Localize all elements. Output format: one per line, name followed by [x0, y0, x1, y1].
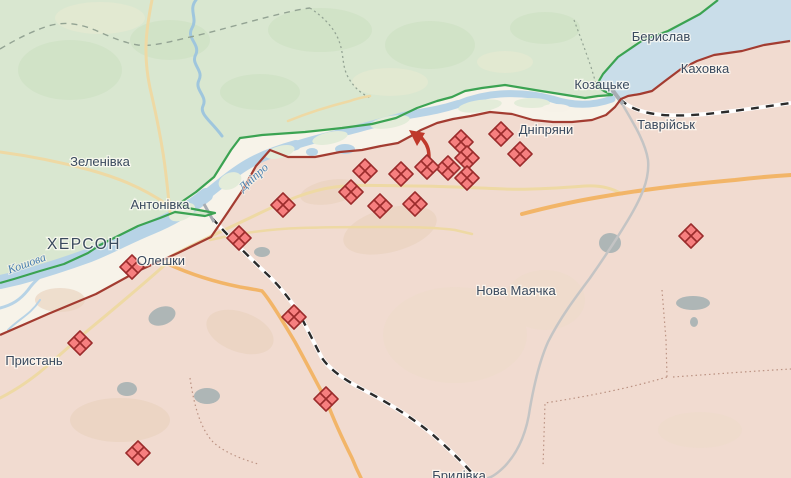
town-label-nova-maiachka: Нова Маячка [476, 283, 556, 298]
map-canvas[interactable]: ЗеленівкаАнтонівкаХЕРСОНОлешкиПристаньДн… [0, 0, 791, 478]
town-label-kakhovka: Каховка [681, 61, 730, 76]
town-label-prystan: Пристань [5, 353, 63, 368]
town-label-beryslav: Берислав [632, 29, 691, 44]
town-label-tavriisk: Таврійськ [637, 117, 695, 132]
town-label-dnipriany: Дніпряни [519, 122, 573, 137]
town-label-antonivka: Антонівка [130, 197, 190, 212]
town-label-kherson: ХЕРСОН [47, 236, 121, 253]
map-viewport: ЗеленівкаАнтонівкаХЕРСОНОлешкиПристаньДн… [0, 0, 791, 478]
town-label-oleshky: Олешки [137, 253, 185, 268]
town-label-zelenivka: Зеленівка [70, 154, 130, 169]
town-label-kozatske: Козацьке [574, 77, 629, 92]
town-label-brylivka: Брилівка [432, 468, 486, 478]
